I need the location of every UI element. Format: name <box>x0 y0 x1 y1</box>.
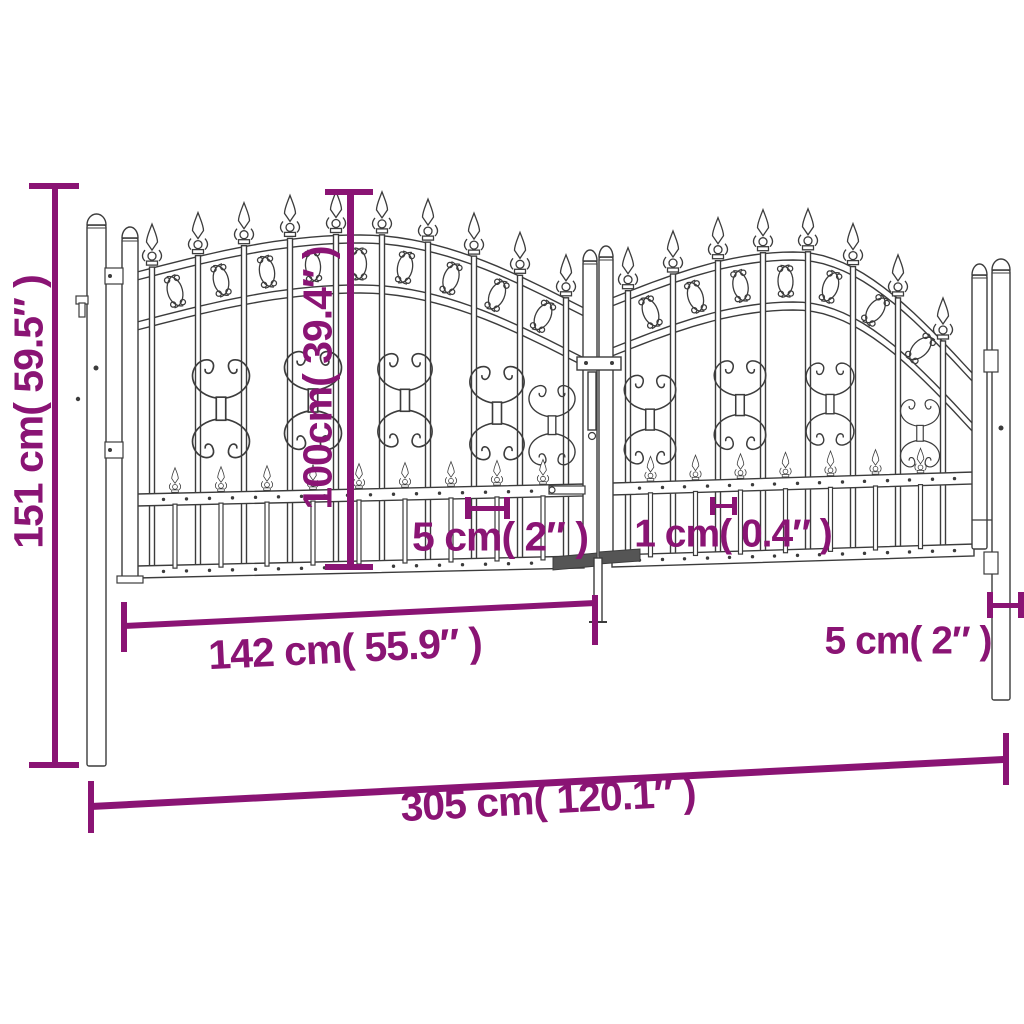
dim-line-vertical <box>52 186 58 766</box>
dim-tick-bottom <box>29 762 79 768</box>
dim-tick-top <box>29 183 79 189</box>
dim-line-vertical <box>347 192 354 570</box>
diagram-canvas: 151 cm( 59.5″ ) 100cm( 39.4″ ) 5 cm( 2″ … <box>0 0 1024 1024</box>
dim-label-bar-gap-left: 5 cm( 2″ ) <box>412 517 588 558</box>
dim-label-total-height: 151 cm( 59.5″ ) <box>9 275 50 549</box>
dim-label-bar-gap-right: 5 cm( 2″ ) <box>825 622 992 661</box>
gate-illustration <box>0 0 1024 1024</box>
dim-tick-top <box>325 189 373 195</box>
dim-tick-bottom <box>325 564 373 570</box>
dim-label-gate-height: 100cm( 39.4″ ) <box>298 246 339 509</box>
dim-label-gap-1cm: 1 cm( 0.4″ ) <box>634 515 831 554</box>
width-marker-5cm-right <box>987 592 1024 618</box>
